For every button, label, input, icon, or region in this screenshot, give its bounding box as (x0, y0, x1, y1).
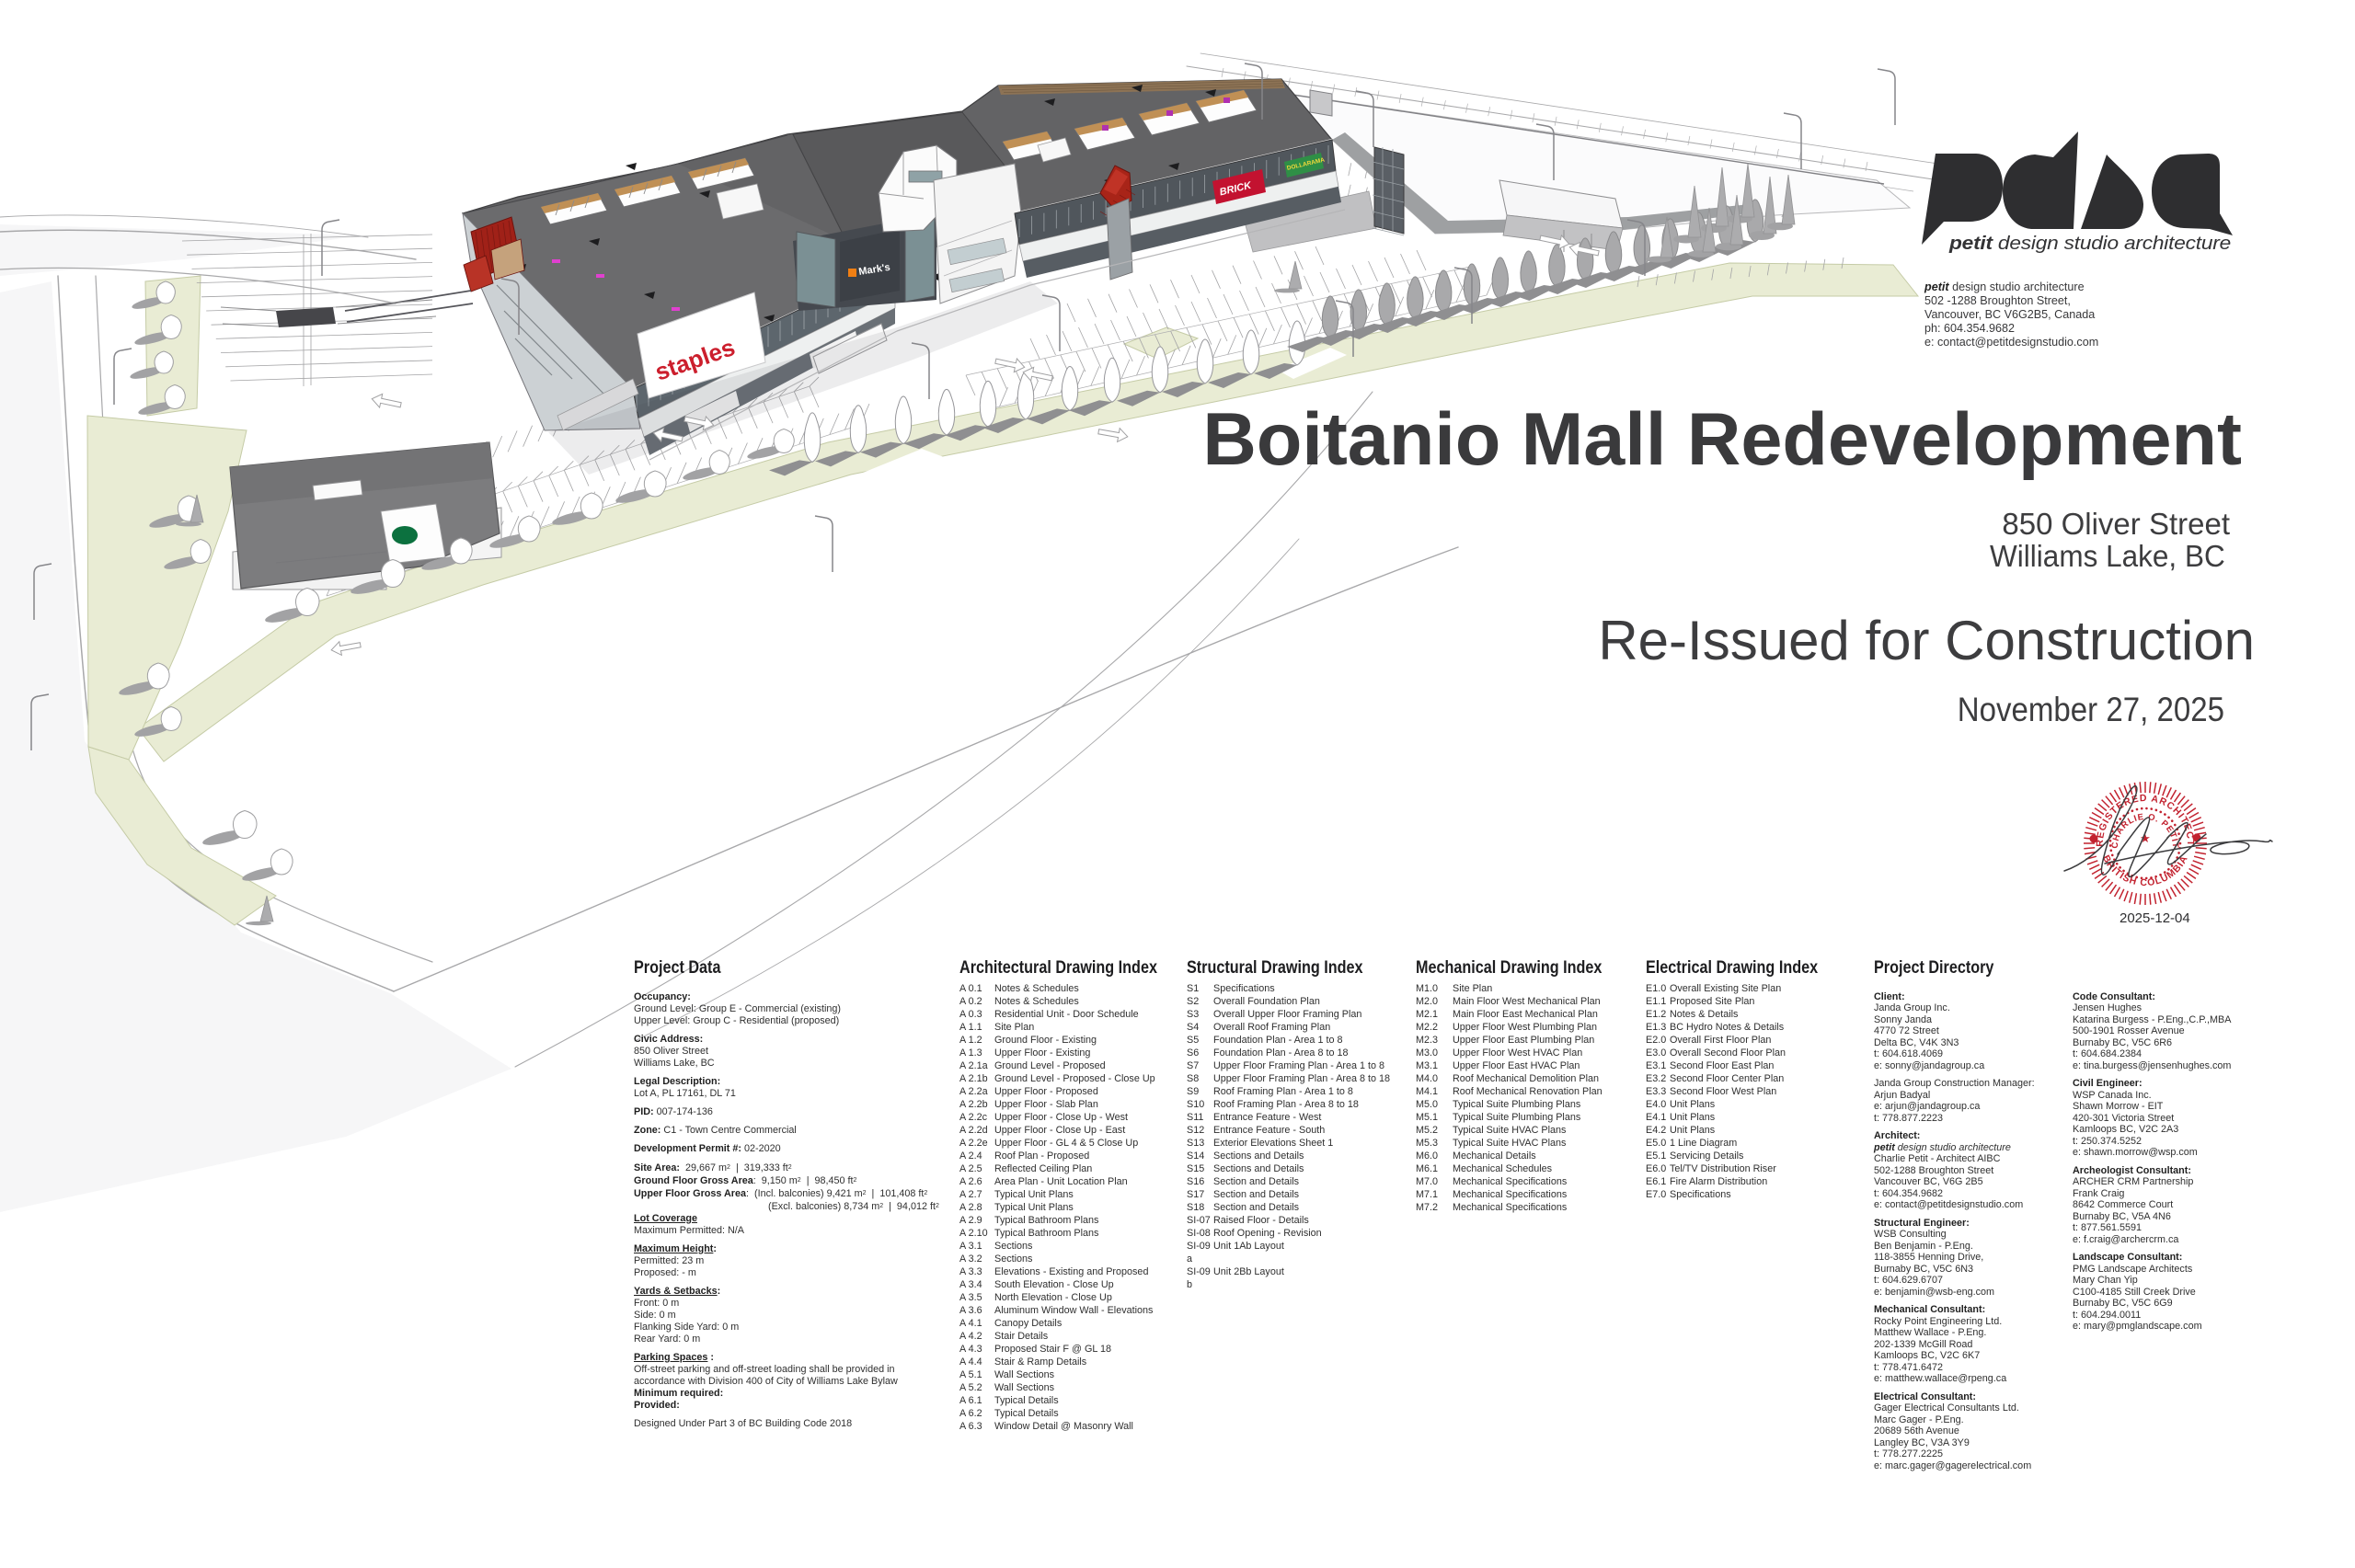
svg-text:petit design studio architectu: petit design studio architecture (1948, 233, 2231, 254)
